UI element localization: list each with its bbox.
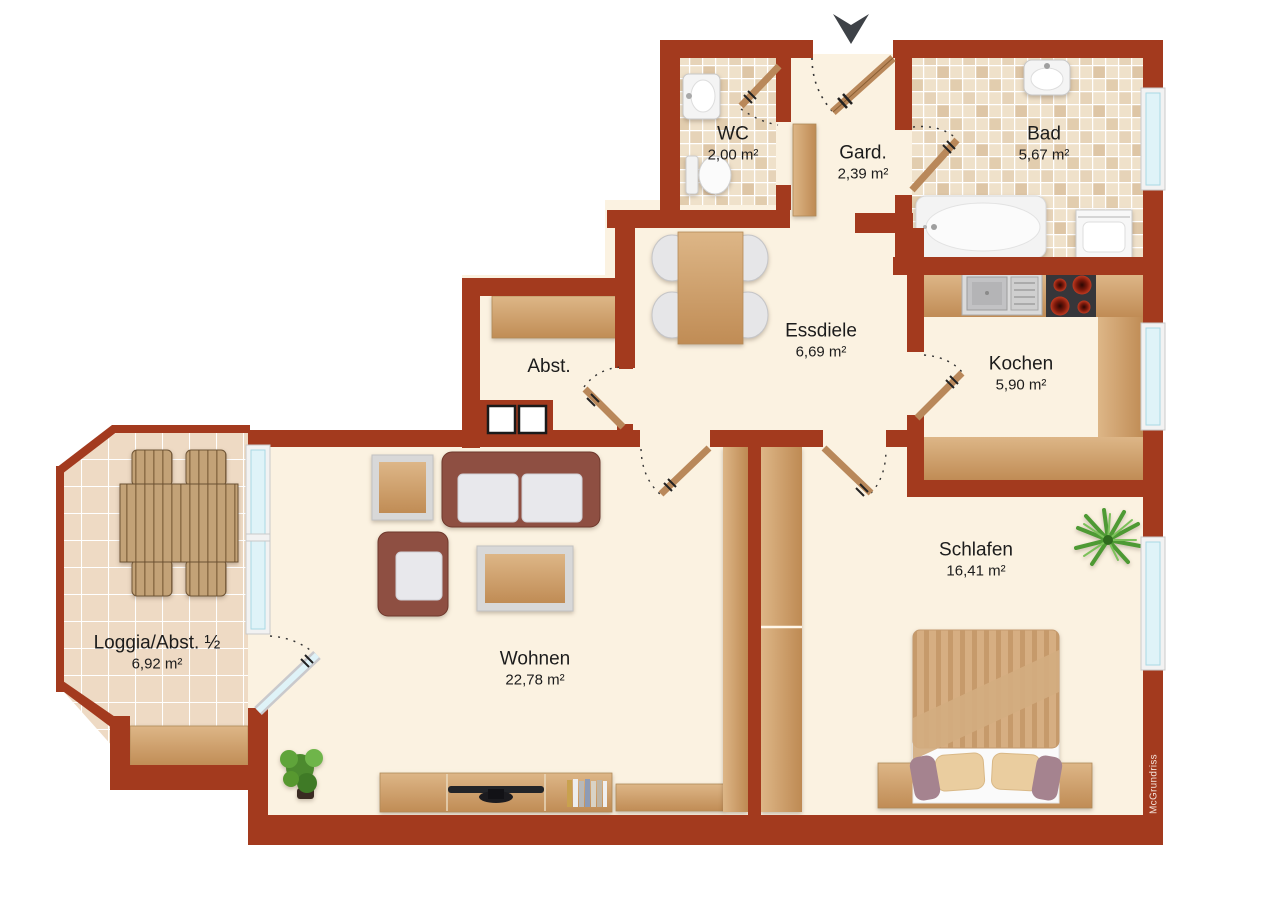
burner	[1051, 297, 1070, 316]
room-area: 6,92 m²	[94, 655, 221, 674]
wall-top-right	[893, 40, 1163, 58]
room-area: 2,00 m²	[708, 146, 759, 165]
pillow	[935, 752, 985, 791]
wall-abst-top	[462, 278, 623, 296]
wall-wc-gard-divider-low	[776, 185, 791, 210]
wardrobe-icon	[723, 447, 748, 812]
entrance-arrow-icon	[833, 14, 869, 44]
wall-top-left	[660, 40, 813, 58]
room-label-schlafen: Schlafen 16,41 m²	[939, 540, 1013, 581]
wall-loggia-top	[112, 425, 250, 433]
room-area: 5,67 m²	[1019, 146, 1070, 165]
room-name: Wohnen	[500, 649, 570, 671]
room-name: Loggia/Abst. ½	[94, 633, 221, 655]
room-area: 6,69 m²	[785, 343, 857, 362]
wall-wc-left	[660, 58, 680, 210]
brand-watermark: McGrundriss	[1149, 754, 1160, 814]
wall-wohnen-schlafen	[748, 447, 761, 815]
chair-icon	[132, 450, 172, 486]
window-icon	[246, 445, 270, 634]
room-name: Essdiele	[785, 321, 857, 343]
wall-wohnen-left-low	[248, 708, 268, 815]
tub-faucet	[931, 224, 937, 230]
burner	[1078, 301, 1091, 314]
bathtub-basin	[926, 203, 1040, 251]
garden-table-icon	[120, 484, 238, 562]
sofa-cushion	[458, 474, 518, 522]
burner	[1073, 276, 1092, 295]
room-label-kochen: Kochen 5,90 m²	[989, 354, 1053, 395]
wall-tee	[886, 430, 907, 447]
bench-icon	[130, 726, 248, 766]
toilet-tank	[686, 156, 698, 194]
wall-kochen-bottom	[907, 480, 1163, 497]
sink-drain	[985, 291, 989, 295]
room-name: WC	[708, 124, 759, 146]
wall-bottom	[248, 815, 1163, 845]
room-area: 22,78 m²	[500, 671, 570, 690]
wall-wohnen-top	[248, 430, 640, 447]
floorplan-canvas: WC 2,00 m² Gard. 2,39 m² Bad 5,67 m² Ess…	[0, 0, 1280, 905]
wall-abst-left	[462, 278, 480, 448]
chair-icon	[132, 560, 172, 596]
wall-center	[710, 430, 823, 447]
room-name: Schlafen	[939, 540, 1013, 562]
room-area: 2,39 m²	[838, 165, 889, 184]
sink-drainer	[1011, 277, 1038, 310]
coffee-table-top	[485, 554, 565, 603]
burner	[1054, 279, 1067, 292]
room-name: Abst.	[527, 356, 570, 378]
faucet-icon	[1044, 63, 1050, 69]
room-label-essdiele: Essdiele 6,69 m²	[785, 321, 857, 362]
window-icon	[1141, 323, 1165, 430]
dining-table-icon	[678, 232, 743, 344]
sink-bowl	[1031, 68, 1063, 90]
window-icon	[1141, 88, 1165, 190]
room-name: Gard.	[838, 143, 889, 165]
shaft-icon	[519, 406, 546, 433]
room-label-wohnen: Wohnen 22,78 m²	[500, 649, 570, 690]
room-area: 16,41 m²	[939, 562, 1013, 581]
room-name: Bad	[1019, 124, 1070, 146]
floorplan-drawing	[0, 0, 1280, 905]
room-label-wc: WC 2,00 m²	[708, 124, 759, 165]
sofa-cushion	[522, 474, 582, 522]
wall-abst-right-stub	[619, 345, 633, 369]
wall-gard-bad-divider	[895, 58, 912, 130]
sink-bowl	[691, 80, 715, 112]
room-area: 5,90 m²	[989, 376, 1053, 395]
low-board	[616, 784, 724, 811]
room-label-bad: Bad 5,67 m²	[1019, 124, 1070, 165]
room-label-loggia: Loggia/Abst. ½ 6,92 m²	[94, 633, 221, 674]
wall-gard-bottom-stub	[855, 213, 913, 233]
chair-icon	[186, 560, 226, 596]
shaft-icon	[488, 406, 515, 433]
books-icon	[567, 779, 607, 807]
washer-lid	[1083, 222, 1125, 252]
faucet-icon	[686, 93, 692, 99]
room-name: Kochen	[989, 354, 1053, 376]
window-icon	[1141, 537, 1165, 670]
wall-bad-bottom	[893, 257, 1163, 275]
tv-hub	[488, 789, 504, 799]
armchair-cushion	[396, 552, 442, 600]
room-label-abst: Abst.	[527, 356, 570, 378]
side-table-top	[379, 462, 426, 513]
room-label-gard: Gard. 2,39 m²	[838, 143, 889, 184]
chair-icon	[186, 450, 226, 486]
wall-loggia-bottom	[110, 765, 250, 790]
counter-bottom	[924, 437, 1145, 480]
wardrobe-icon	[761, 447, 802, 812]
wall-wohnen-left-top	[248, 430, 268, 447]
wardrobe-icon	[793, 124, 816, 216]
shelf-icon	[492, 296, 618, 338]
wall-loggia-left	[56, 466, 64, 692]
